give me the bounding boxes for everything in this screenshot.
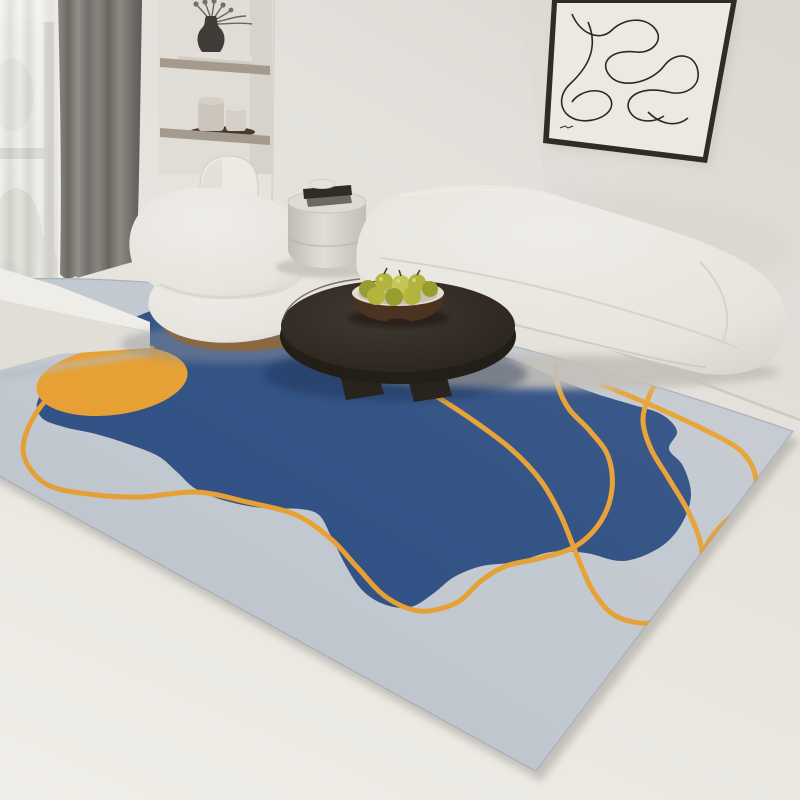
vignette <box>0 0 800 800</box>
scene-canvas <box>0 0 800 800</box>
living-room-photo <box>0 0 800 800</box>
